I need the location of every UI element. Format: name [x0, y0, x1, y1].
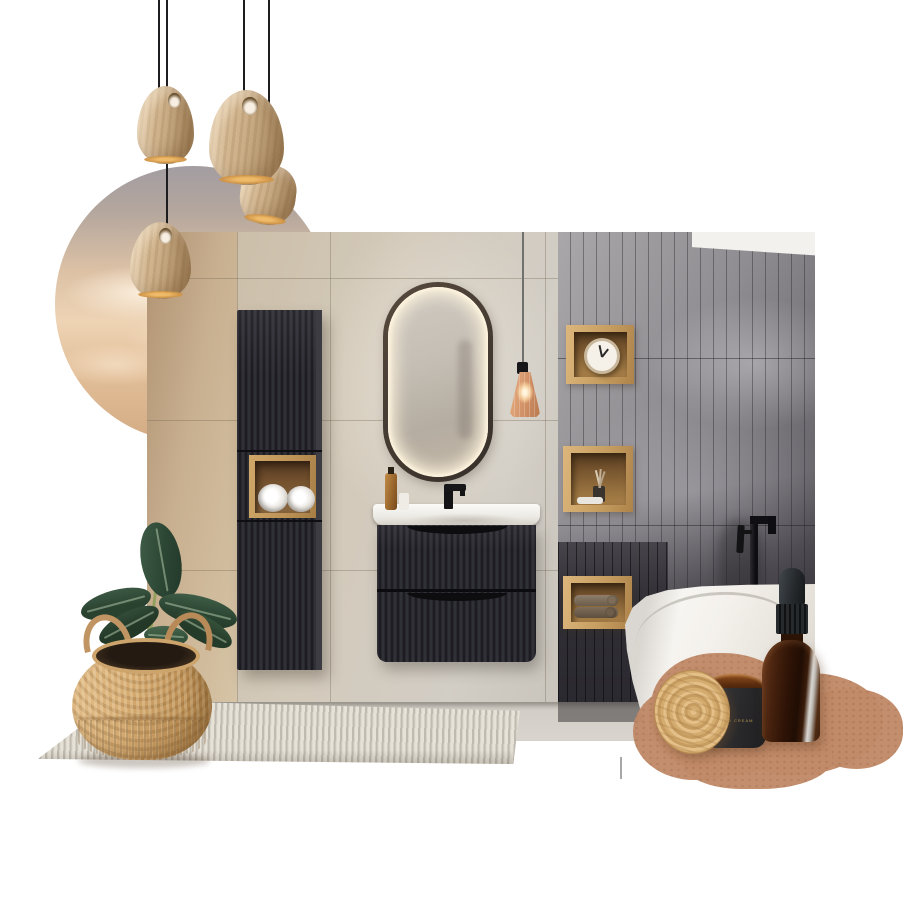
- clock-hand: [599, 345, 603, 357]
- oval-mirror: [383, 282, 493, 482]
- basket-ribs: [78, 720, 207, 758]
- cabinet-niche: [249, 455, 316, 518]
- pendant-cord: [522, 232, 524, 364]
- lamp-glow: [138, 291, 183, 298]
- leaf-vein: [155, 528, 168, 591]
- pendant-lamp-1: [137, 86, 194, 164]
- lamp-cord-1: [158, 0, 160, 90]
- dropper-collar: [776, 604, 808, 634]
- lamp-hole: [159, 228, 172, 244]
- soap-bottle-amber: [385, 473, 397, 510]
- alarm-clock: [584, 338, 620, 374]
- faucet-spout-tip: [460, 489, 465, 496]
- folded-cloth: [577, 497, 603, 504]
- mirror-glass-led-ring: [388, 287, 488, 477]
- drip-mark: [620, 757, 622, 779]
- tile-seam: [147, 278, 558, 279]
- drawer-handle: [407, 593, 507, 601]
- dropper-bottle: [762, 568, 820, 744]
- bottle-body: [762, 640, 820, 742]
- vanity-cabinet: [377, 525, 536, 662]
- shower-bracket: [743, 530, 752, 534]
- lamp-hole: [168, 93, 181, 108]
- towel-roll-end: [607, 595, 618, 606]
- lamp-glow: [144, 156, 186, 163]
- rolled-towel: [574, 607, 618, 618]
- cabinet-side: [316, 310, 322, 670]
- door-gap: [237, 520, 322, 522]
- bottle-cap: [388, 467, 394, 474]
- wall-cube-towels: [563, 576, 632, 629]
- towel-roll-end: [605, 607, 616, 618]
- seagrass-basket: [72, 640, 212, 766]
- rolled-towel: [287, 486, 315, 512]
- rolled-towel: [258, 484, 288, 512]
- wall-cube-diffuser: [563, 446, 633, 512]
- tile-seam: [147, 420, 558, 421]
- tall-cabinet: [237, 310, 322, 670]
- drawer-handle: [407, 526, 507, 534]
- faucet-spout-drop: [768, 516, 776, 534]
- lamp-glow: [219, 175, 275, 184]
- soap-bottle-white: [399, 493, 409, 510]
- basket-opening: [92, 638, 200, 674]
- tile-seam: [545, 232, 546, 702]
- niche-interior: [255, 461, 310, 513]
- wall-cube-clock: [566, 325, 634, 384]
- mirror-reflection: [458, 340, 472, 439]
- lamp-hole: [242, 97, 258, 115]
- door-gap: [237, 450, 322, 452]
- pendant-lamp-2: [209, 90, 284, 185]
- tile-seam: [330, 232, 331, 702]
- rolled-towel: [574, 595, 618, 606]
- lamp-cord-2: [243, 0, 245, 97]
- dropper-bulb: [779, 568, 805, 606]
- moodboard-collage: HAND CREAM: [0, 0, 915, 915]
- drawer-gap: [377, 589, 536, 592]
